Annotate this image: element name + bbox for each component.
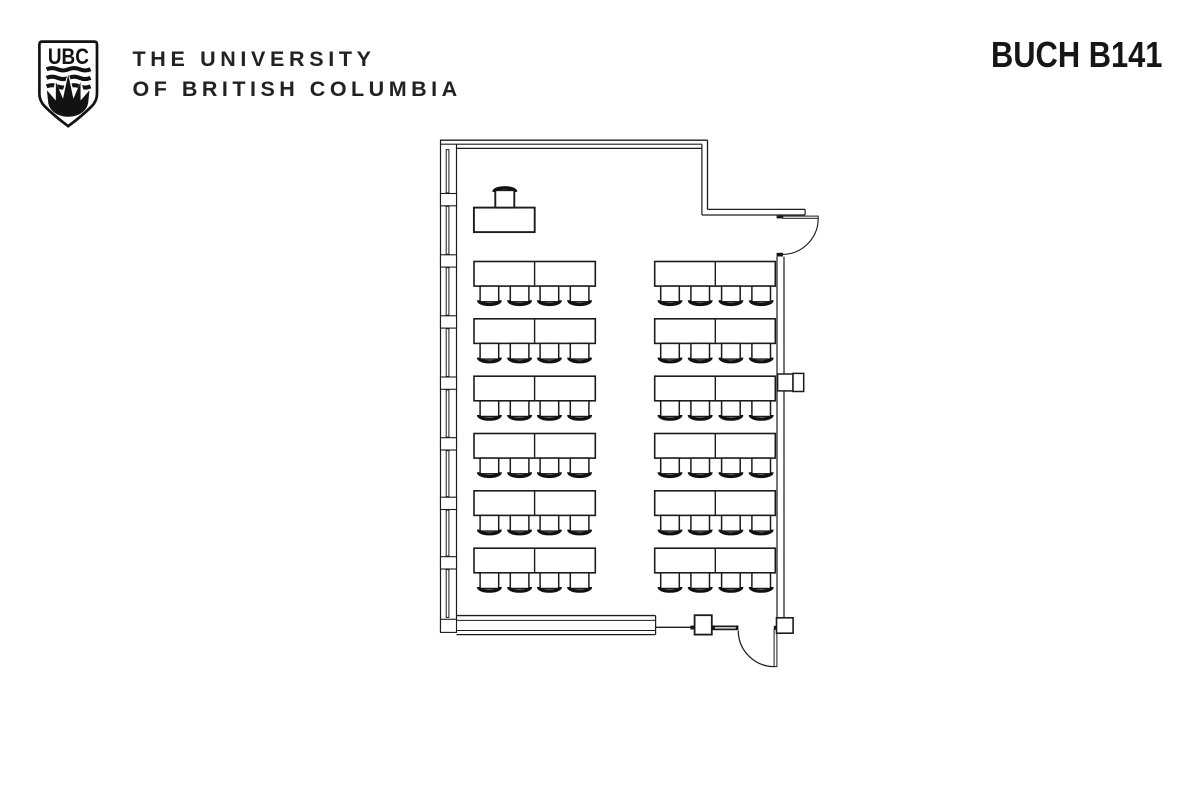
svg-text:UBC: UBC bbox=[48, 44, 89, 69]
